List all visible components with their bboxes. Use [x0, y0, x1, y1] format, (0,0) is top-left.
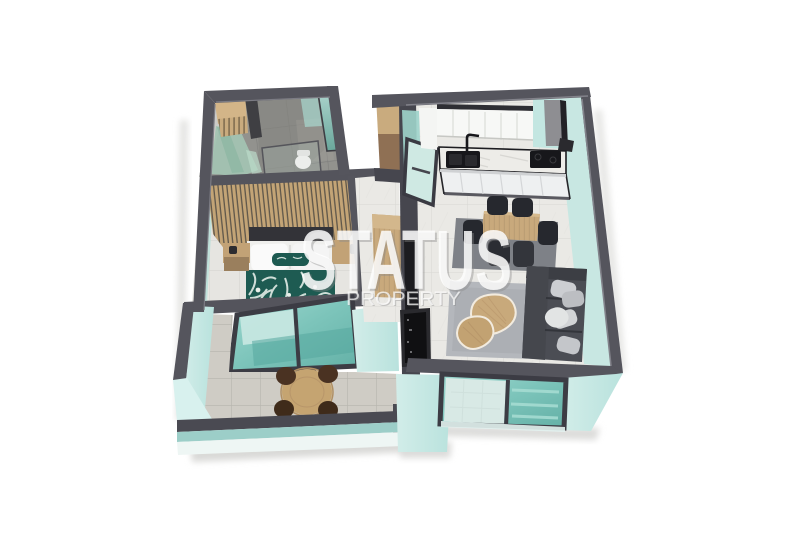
svg-text:PROPERTY: PROPERTY	[346, 289, 461, 310]
